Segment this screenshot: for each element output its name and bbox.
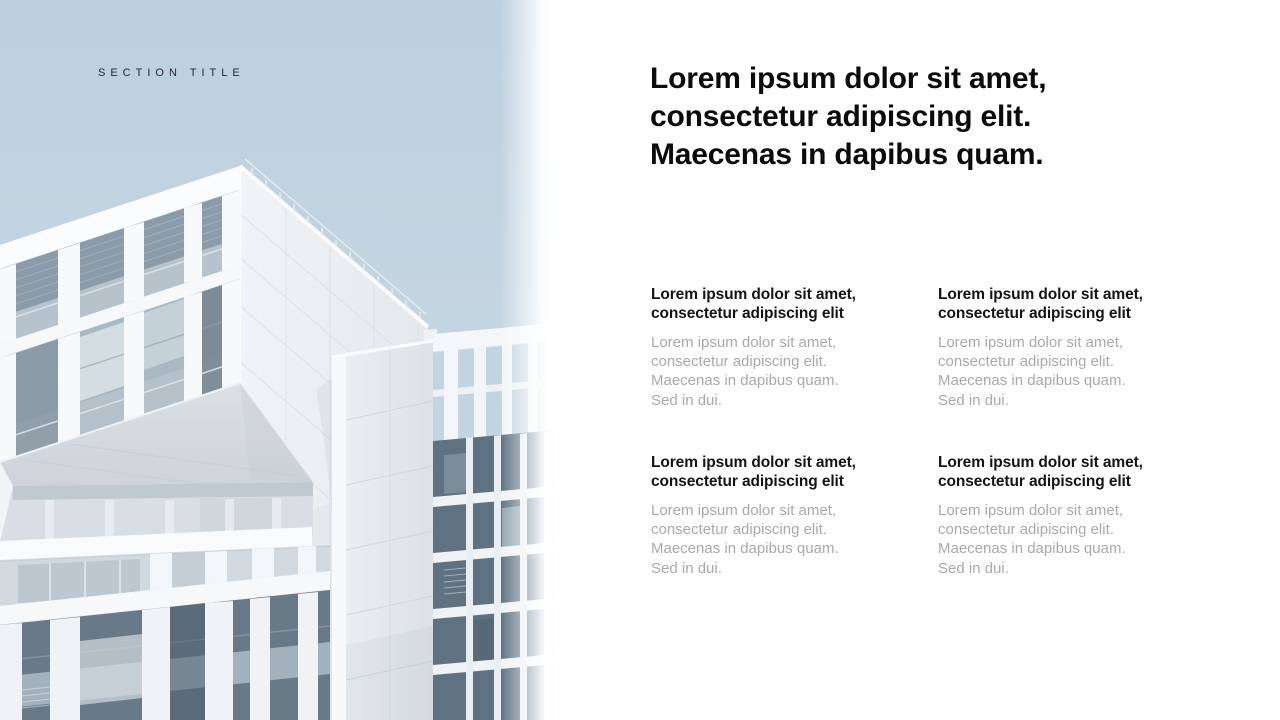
info-block-body: Lorem ipsum dolor sit amet, consectetur …	[651, 501, 926, 578]
info-block-1: Lorem ipsum dolor sit amet, consectetur …	[651, 285, 926, 410]
lower-terrace-block	[0, 527, 330, 720]
info-block-body: Lorem ipsum dolor sit amet, consectetur …	[938, 501, 1213, 578]
photo-fade-overlay	[500, 0, 556, 720]
info-block-heading: Lorem ipsum dolor sit amet, consectetur …	[651, 285, 926, 323]
section-title-label: SECTION TITLE	[98, 66, 245, 80]
info-block-2: Lorem ipsum dolor sit amet, consectetur …	[938, 285, 1213, 410]
slide-title-line: consectetur adipiscing elit.	[650, 98, 1046, 136]
slide-title-line: Lorem ipsum dolor sit amet,	[650, 60, 1046, 98]
slide-title: Lorem ipsum dolor sit amet, consectetur …	[650, 60, 1046, 174]
info-block-body: Lorem ipsum dolor sit amet, consectetur …	[938, 333, 1213, 410]
info-block-heading: Lorem ipsum dolor sit amet, consectetur …	[651, 453, 926, 491]
info-block-heading: Lorem ipsum dolor sit amet, consectetur …	[938, 285, 1213, 323]
info-block-heading: Lorem ipsum dolor sit amet, consectetur …	[938, 453, 1213, 491]
slide-canvas: SECTION TITLE Lorem ipsum dolor sit amet…	[0, 0, 1280, 720]
info-block-3: Lorem ipsum dolor sit amet, consectetur …	[651, 453, 926, 578]
slide-title-line: Maecenas in dapibus quam.	[650, 136, 1046, 174]
building-illustration	[0, 0, 556, 720]
info-block-body: Lorem ipsum dolor sit amet, consectetur …	[651, 333, 926, 410]
building-photo: SECTION TITLE	[0, 0, 556, 720]
info-block-4: Lorem ipsum dolor sit amet, consectetur …	[938, 453, 1213, 578]
gray-corner-mass	[332, 341, 433, 720]
